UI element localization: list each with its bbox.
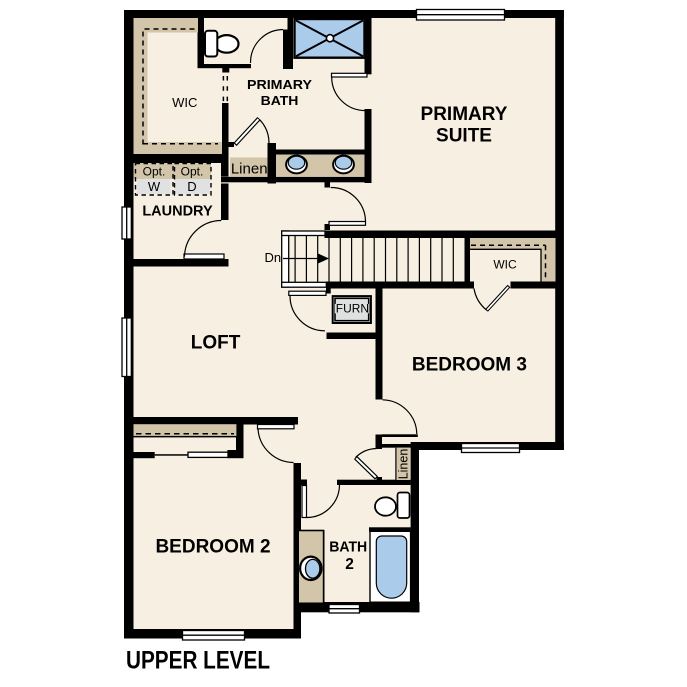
svg-text:Linen: Linen: [397, 449, 411, 480]
svg-text:LAUNDRY: LAUNDRY: [142, 204, 213, 220]
svg-text:PRIMARY: PRIMARY: [247, 77, 312, 92]
svg-text:BEDROOM 2: BEDROOM 2: [155, 537, 270, 558]
svg-text:W: W: [148, 179, 161, 194]
svg-text:Opt.: Opt.: [143, 164, 166, 178]
svg-text:WIC: WIC: [172, 95, 197, 110]
svg-text:Linen: Linen: [231, 161, 268, 178]
svg-text:2: 2: [345, 556, 354, 573]
svg-text:BEDROOM 3: BEDROOM 3: [412, 355, 527, 376]
svg-text:SUITE: SUITE: [436, 126, 492, 147]
svg-text:BATH: BATH: [261, 93, 299, 108]
svg-text:D: D: [187, 179, 196, 194]
svg-text:Dn: Dn: [265, 250, 282, 265]
svg-text:WIC: WIC: [493, 258, 517, 272]
svg-text:LOFT: LOFT: [191, 333, 241, 354]
svg-text:UPPER LEVEL: UPPER LEVEL: [126, 647, 270, 675]
svg-text:FURN: FURN: [336, 303, 369, 315]
svg-text:Opt.: Opt.: [181, 164, 204, 178]
svg-text:BATH: BATH: [329, 540, 367, 556]
svg-text:PRIMARY: PRIMARY: [421, 104, 508, 125]
